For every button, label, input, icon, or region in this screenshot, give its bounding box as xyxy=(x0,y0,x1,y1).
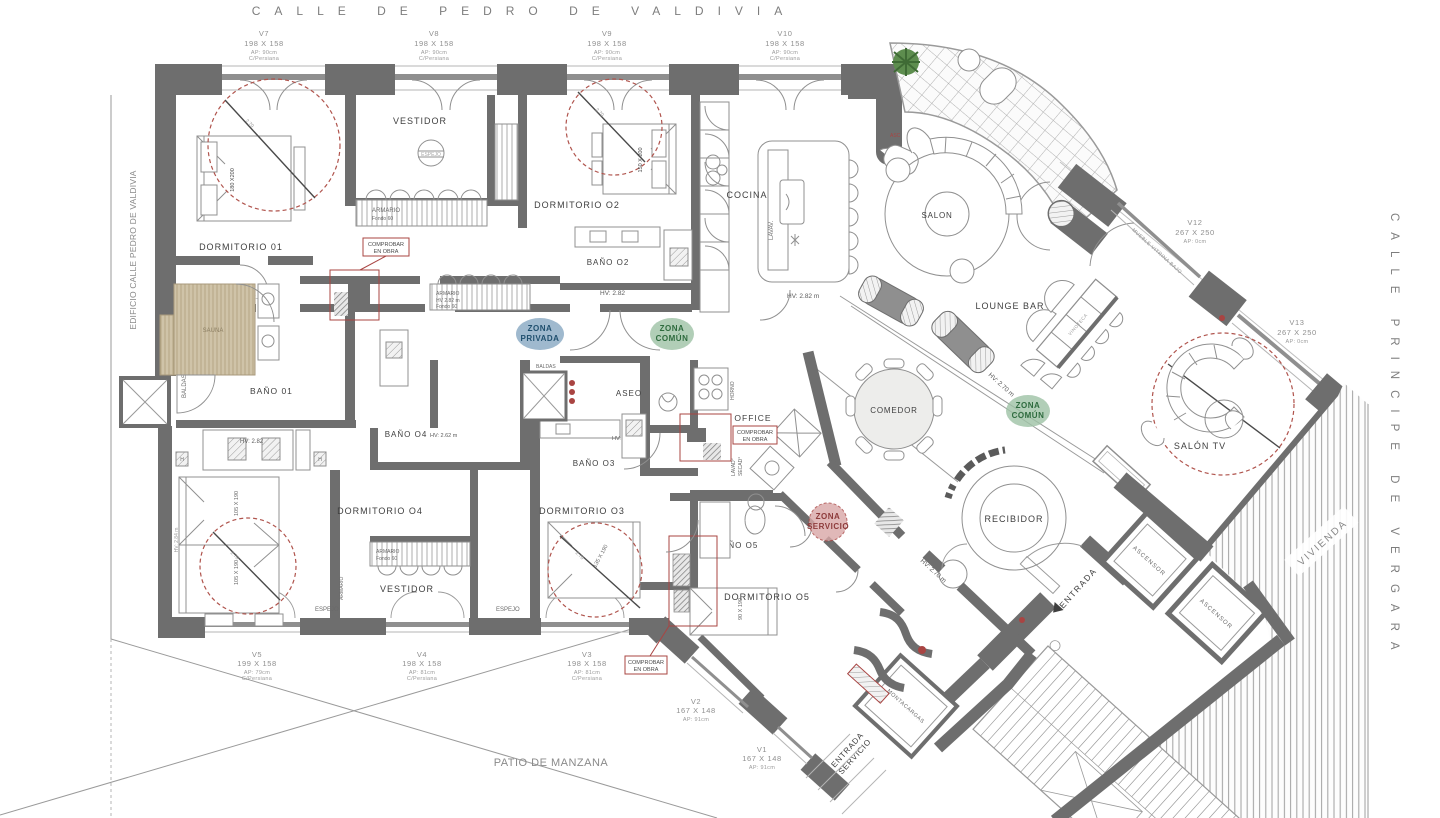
svg-text:105 X 190: 105 X 190 xyxy=(234,560,240,585)
svg-text:EN OBRA: EN OBRA xyxy=(743,437,768,443)
svg-text:SECAD°: SECAD° xyxy=(738,457,744,476)
svg-text:ARMARIO: ARMARIO xyxy=(436,291,459,297)
svg-text:C/Persiana: C/Persiana xyxy=(249,56,280,62)
svg-text:198 X 158: 198 X 158 xyxy=(765,39,805,48)
svg-text:DORMITORIO O2: DORMITORIO O2 xyxy=(534,200,620,210)
svg-text:Fondo 60: Fondo 60 xyxy=(376,556,397,562)
svg-text:199 X 158: 199 X 158 xyxy=(237,659,277,668)
svg-text:105 X 190: 105 X 190 xyxy=(234,491,240,516)
svg-text:ARMARIO: ARMARIO xyxy=(376,549,399,555)
svg-text:Fondo 60: Fondo 60 xyxy=(436,304,457,310)
svg-text:V2: V2 xyxy=(691,697,701,706)
svg-text:HV: 2.82 m: HV: 2.82 m xyxy=(787,293,819,300)
svg-text:COCINA: COCINA xyxy=(726,190,767,200)
svg-text:ESPEJO: ESPEJO xyxy=(421,152,441,158)
svg-text:BALDAS: BALDAS xyxy=(182,374,188,398)
svg-text:ASC: ASC xyxy=(890,133,901,139)
svg-text:BAÑO O3: BAÑO O3 xyxy=(573,459,616,468)
svg-text:C/Persiana: C/Persiana xyxy=(407,676,438,682)
svg-text:267 X 250: 267 X 250 xyxy=(1175,228,1215,237)
svg-text:CALLE DE PEDRO DE VALDIVIA: CALLE DE PEDRO DE VALDIVIA xyxy=(252,4,797,18)
svg-text:V13: V13 xyxy=(1289,318,1304,327)
svg-text:SAUNA: SAUNA xyxy=(203,328,224,334)
svg-text:180 X200: 180 X200 xyxy=(230,168,236,192)
svg-text:V7: V7 xyxy=(259,29,269,38)
svg-text:198 X 158: 198 X 158 xyxy=(402,659,442,668)
svg-text:198 X 158: 198 X 158 xyxy=(567,659,607,668)
svg-text:LOUNGE BAR: LOUNGE BAR xyxy=(975,301,1044,311)
svg-text:90 X 190: 90 X 190 xyxy=(738,598,744,620)
svg-text:SALON: SALON xyxy=(921,211,952,220)
svg-text:HV: 2.62 m: HV: 2.62 m xyxy=(430,433,458,439)
svg-text:HV: 2.82: HV: 2.82 xyxy=(240,439,264,445)
svg-text:198 X 158: 198 X 158 xyxy=(587,39,627,48)
svg-text:OFFICE: OFFICE xyxy=(734,413,771,423)
svg-text:ARMARIO: ARMARIO xyxy=(372,208,400,214)
svg-text:198 X 158: 198 X 158 xyxy=(244,39,284,48)
svg-text:ASEO: ASEO xyxy=(616,389,642,398)
svg-text:V8: V8 xyxy=(429,29,439,38)
svg-text:HV: 2.84 m: HV: 2.84 m xyxy=(174,528,180,553)
svg-text:AP: 0cm: AP: 0cm xyxy=(1286,339,1309,345)
svg-text:DORMITORIO O4: DORMITORIO O4 xyxy=(337,506,423,516)
svg-text:BAÑO 01: BAÑO 01 xyxy=(250,386,293,396)
svg-text:167 X 148: 167 X 148 xyxy=(742,754,782,763)
svg-text:VESTIDOR: VESTIDOR xyxy=(380,584,434,594)
svg-text:ZONA: ZONA xyxy=(1016,401,1041,410)
svg-text:C/Persiana: C/Persiana xyxy=(572,676,603,682)
svg-text:CALLE PRINCIPE DE VERGARA: CALLE PRINCIPE DE VERGARA xyxy=(1388,213,1400,661)
svg-text:BALDAS: BALDAS xyxy=(536,364,556,370)
svg-text:DORMITORIO O3: DORMITORIO O3 xyxy=(539,506,625,516)
svg-text:PRIVADA: PRIVADA xyxy=(521,334,560,343)
svg-text:BAÑO O4: BAÑO O4 xyxy=(385,430,428,439)
svg-text:V4: V4 xyxy=(417,650,427,659)
svg-text:ARMARIO: ARMARIO xyxy=(339,577,345,600)
svg-text:C/Persiana: C/Persiana xyxy=(419,56,450,62)
svg-text:ZONA: ZONA xyxy=(528,324,553,333)
svg-text:HV: 2.82: HV: 2.82 xyxy=(600,290,625,297)
svg-text:ZONA: ZONA xyxy=(816,512,841,521)
svg-text:ESPEJO: ESPEJO xyxy=(496,607,520,613)
svg-text:DORMITORIO 01: DORMITORIO 01 xyxy=(199,242,283,252)
svg-text:COMPROBAR: COMPROBAR xyxy=(628,660,664,666)
svg-text:EN OBRA: EN OBRA xyxy=(374,249,399,255)
svg-text:C/Persiana: C/Persiana xyxy=(592,56,623,62)
svg-text:SALÓN TV: SALÓN TV xyxy=(1174,441,1226,451)
svg-text:V5: V5 xyxy=(252,650,262,659)
svg-text:AP: 91cm: AP: 91cm xyxy=(683,717,709,723)
svg-text:RECIBIDOR: RECIBIDOR xyxy=(984,514,1043,524)
svg-text:EN OBRA: EN OBRA xyxy=(634,667,659,673)
svg-text:ZONA: ZONA xyxy=(660,324,685,333)
svg-text:COMPROBAR: COMPROBAR xyxy=(368,242,404,248)
svg-text:C/Persiana: C/Persiana xyxy=(242,676,273,682)
svg-text:LAVAD°: LAVAD° xyxy=(731,458,737,476)
svg-text:HORNO: HORNO xyxy=(730,381,736,400)
svg-text:V9: V9 xyxy=(602,29,612,38)
svg-text:PATIO DE MANZANA: PATIO DE MANZANA xyxy=(494,757,609,769)
svg-text:Fondo 60: Fondo 60 xyxy=(372,216,393,222)
svg-text:V12: V12 xyxy=(1187,218,1202,227)
svg-text:COMPROBAR: COMPROBAR xyxy=(737,430,773,436)
svg-text:V1: V1 xyxy=(757,745,767,754)
svg-text:167 X 148: 167 X 148 xyxy=(676,706,716,715)
svg-text:V10: V10 xyxy=(777,29,792,38)
svg-text:V3: V3 xyxy=(582,650,592,659)
svg-text:150 X 200: 150 X 200 xyxy=(638,147,644,172)
svg-text:EDIFICIO CALLE PEDRO DE VALDIV: EDIFICIO CALLE PEDRO DE VALDIVIA xyxy=(128,170,138,329)
svg-text:SERVICIO: SERVICIO xyxy=(807,522,849,531)
svg-text:H: H xyxy=(180,457,184,463)
svg-text:198 X 158: 198 X 158 xyxy=(414,39,454,48)
svg-text:AP: 0cm: AP: 0cm xyxy=(1184,239,1207,245)
svg-text:BAÑO O2: BAÑO O2 xyxy=(587,258,630,267)
svg-text:AP: 91cm: AP: 91cm xyxy=(749,765,775,771)
svg-text:267 X 250: 267 X 250 xyxy=(1277,328,1317,337)
svg-text:COMÚN: COMÚN xyxy=(656,334,689,343)
svg-text:DORMITORIO O5: DORMITORIO O5 xyxy=(724,592,810,602)
svg-text:H: H xyxy=(318,457,322,463)
svg-text:COMEDOR: COMEDOR xyxy=(870,406,917,415)
svg-text:LAVAV.: LAVAV. xyxy=(769,221,775,240)
svg-text:C/Persiana: C/Persiana xyxy=(770,56,801,62)
svg-text:VESTIDOR: VESTIDOR xyxy=(393,116,447,126)
svg-text:ESPEJO: ESPEJO xyxy=(315,607,339,613)
svg-text:COMÚN: COMÚN xyxy=(1012,411,1045,420)
